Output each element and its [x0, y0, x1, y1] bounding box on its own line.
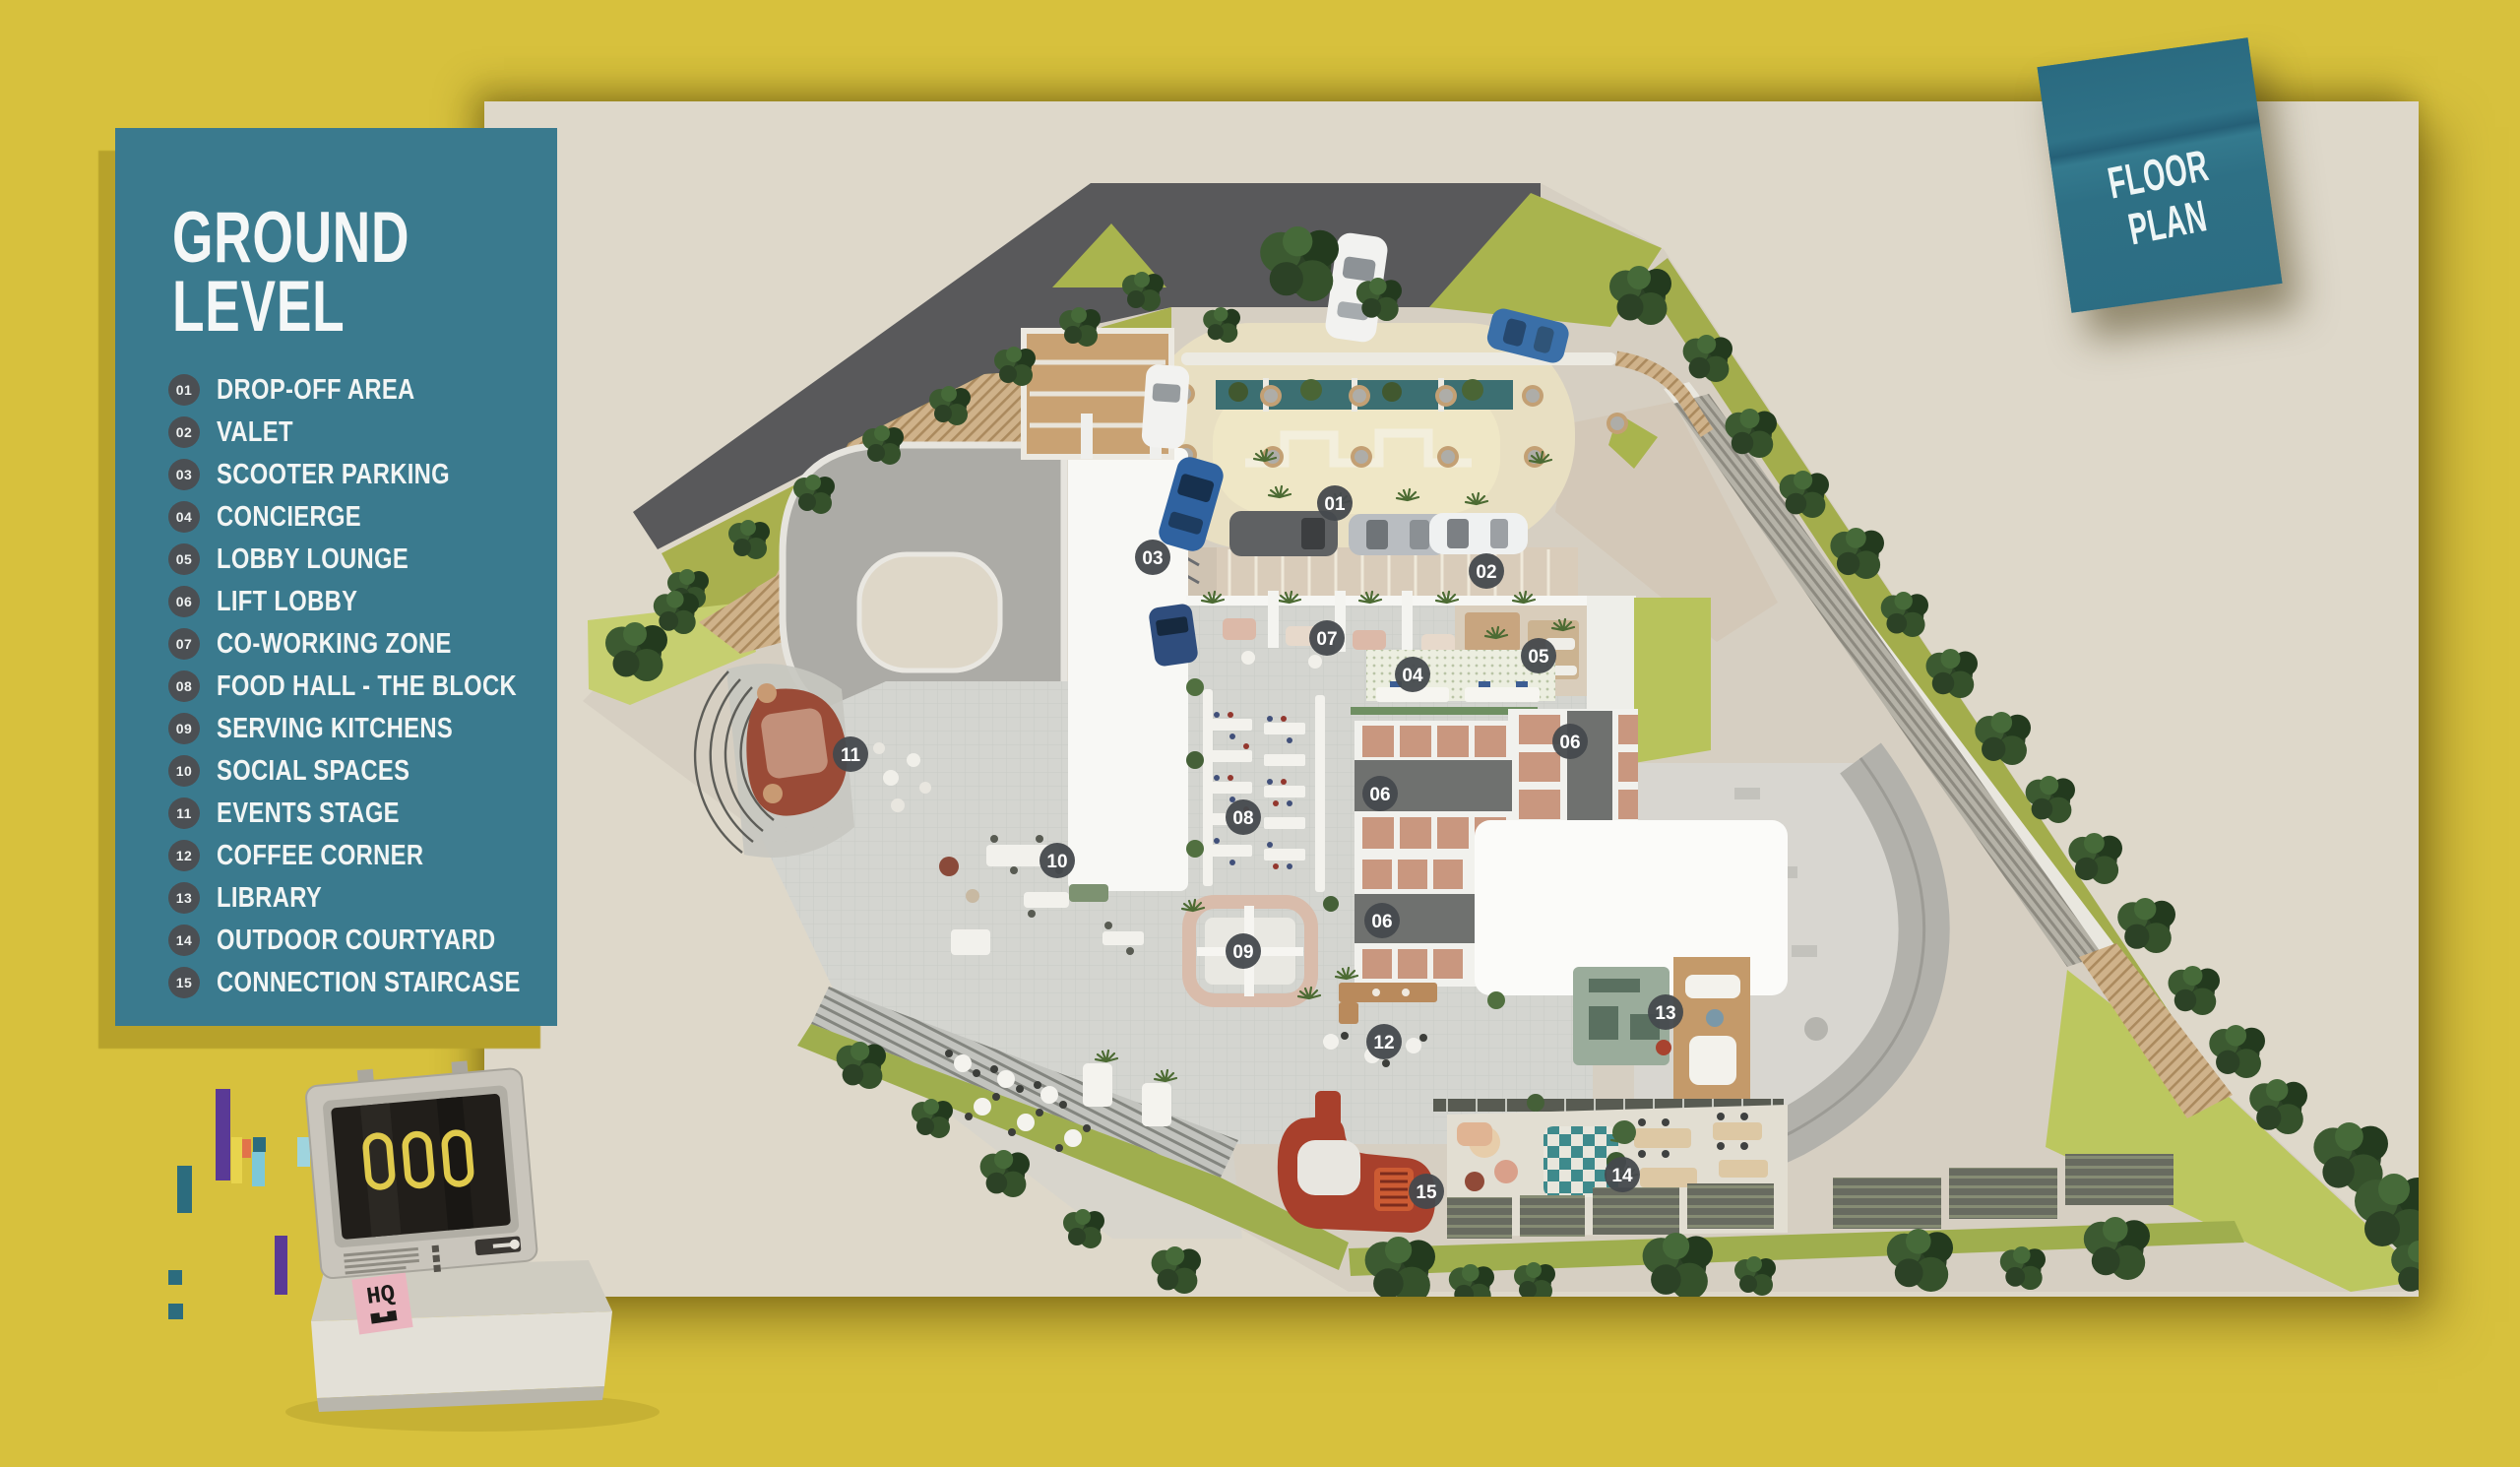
svg-text:09: 09 [1232, 942, 1253, 963]
svg-text:01: 01 [1324, 494, 1346, 515]
svg-text:03: 03 [1142, 548, 1163, 569]
svg-text:06: 06 [1371, 912, 1392, 932]
svg-text:12: 12 [1373, 1033, 1394, 1053]
svg-text:08: 08 [1232, 808, 1253, 829]
svg-text:15: 15 [1416, 1182, 1437, 1203]
svg-text:14: 14 [1611, 1166, 1633, 1186]
svg-text:13: 13 [1655, 1003, 1675, 1024]
svg-text:11: 11 [841, 745, 861, 766]
svg-text:06: 06 [1559, 733, 1580, 753]
svg-text:02: 02 [1476, 562, 1496, 583]
svg-text:06: 06 [1369, 785, 1390, 805]
svg-text:07: 07 [1316, 629, 1337, 650]
svg-text:05: 05 [1528, 647, 1549, 668]
svg-text:04: 04 [1402, 666, 1423, 686]
svg-text:10: 10 [1046, 852, 1067, 872]
svg-text:HQ: HQ [365, 1281, 397, 1311]
